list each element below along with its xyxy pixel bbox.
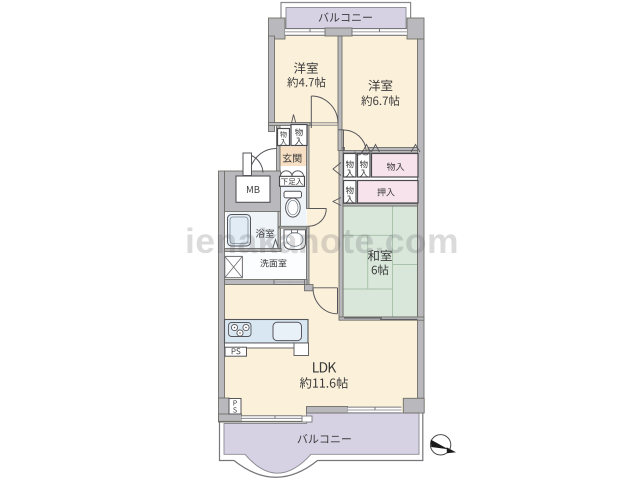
svg-text:ienakanote.com: ienakanote.com xyxy=(185,221,459,261)
